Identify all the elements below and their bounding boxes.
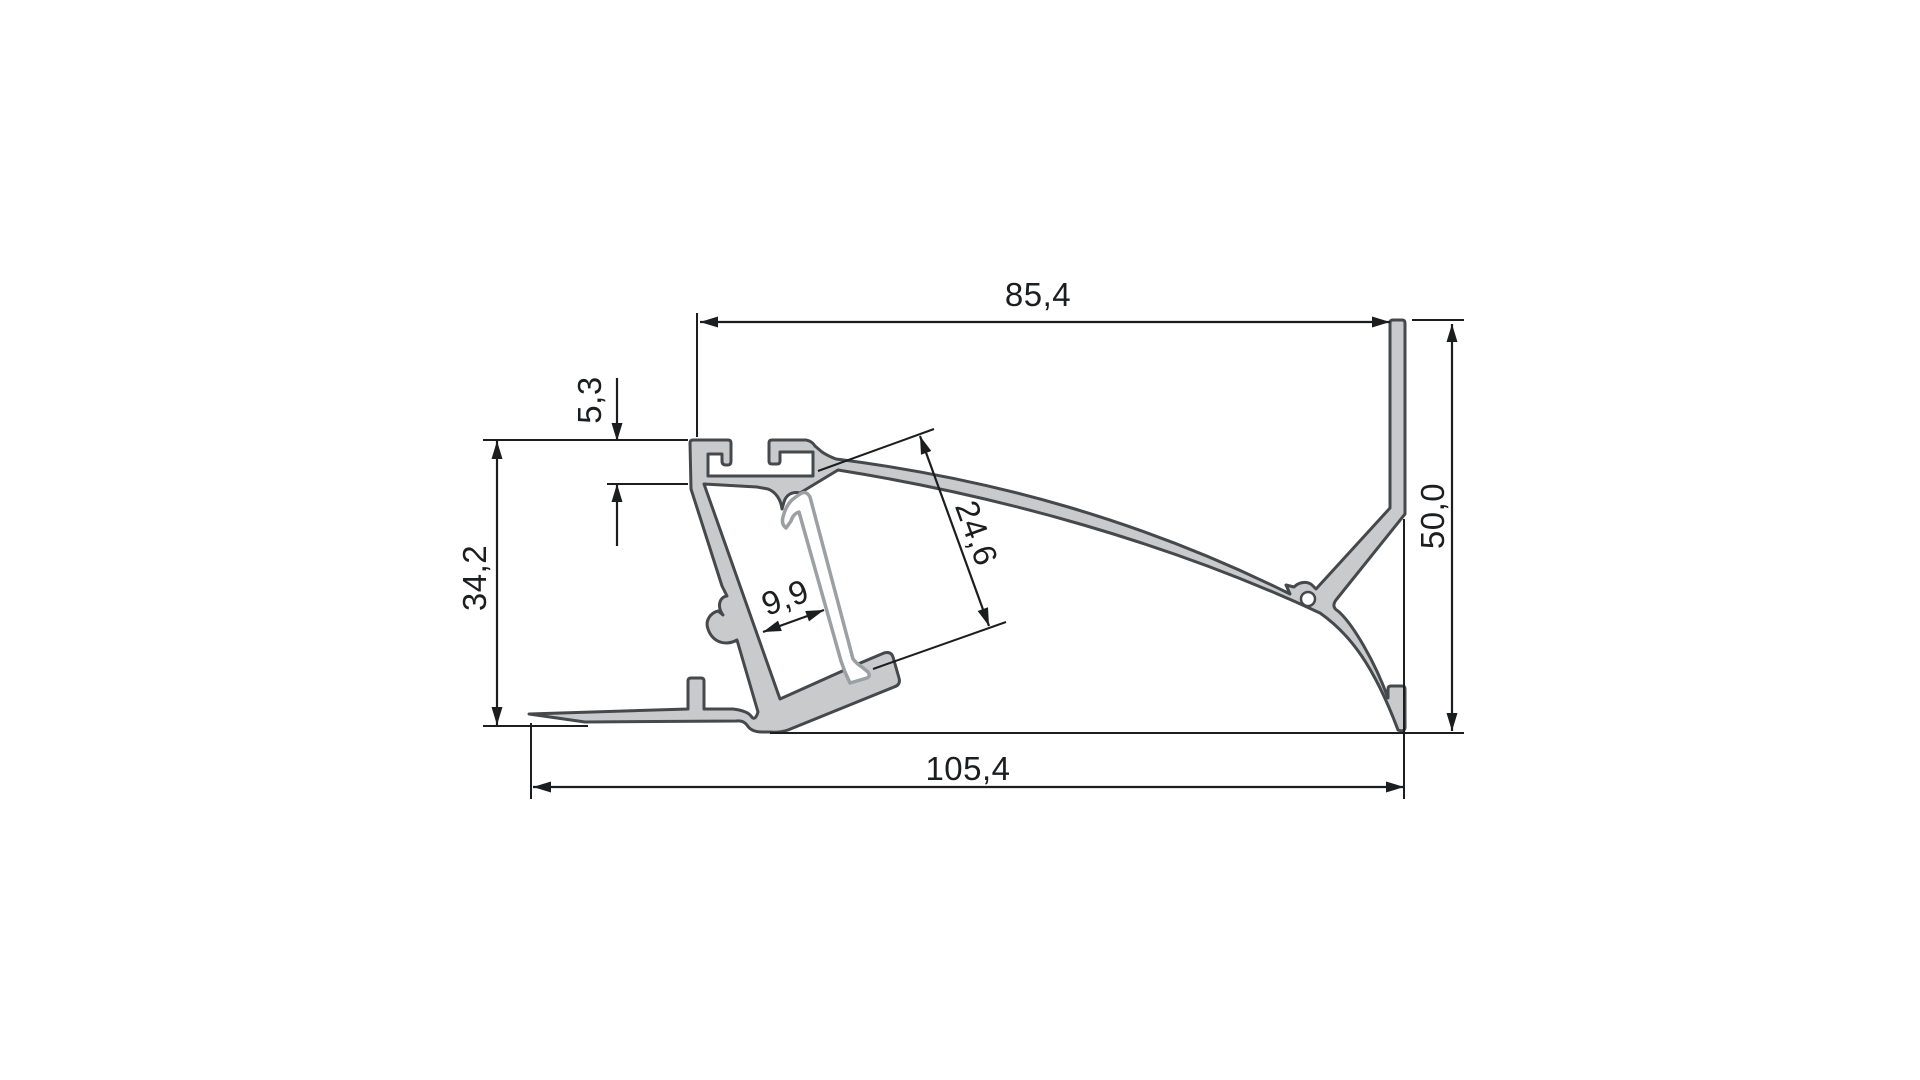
- label-channel-depth: 24,6: [948, 496, 1005, 571]
- label-top-width: 85,4: [1005, 276, 1071, 313]
- arrowhead: [1386, 782, 1404, 793]
- arrowhead: [492, 707, 503, 725]
- arrowhead: [533, 782, 551, 793]
- label-channel-inner-width: 9,9: [756, 572, 813, 623]
- arrowhead: [1447, 713, 1458, 731]
- arrowhead: [612, 423, 623, 441]
- arrowhead: [978, 607, 994, 628]
- arrowhead: [700, 317, 718, 328]
- technical-drawing-canvas: 85,4 5,3 34,2 24,6 9,9 50,0 105,4: [0, 0, 1920, 1080]
- arrowhead: [915, 434, 931, 455]
- extension-channel-bottom: [873, 622, 1006, 669]
- arrowhead: [761, 621, 782, 637]
- label-left-height: 34,2: [456, 545, 493, 611]
- label-bottom-width: 105,4: [925, 750, 1010, 787]
- arrowhead: [612, 484, 623, 502]
- screw-port-hole: [1301, 592, 1315, 606]
- arrowhead: [492, 441, 503, 459]
- label-lip-height: 5,3: [571, 376, 608, 423]
- arrowhead: [1372, 317, 1390, 328]
- profile-cross-section: 85,4 5,3 34,2 24,6 9,9 50,0 105,4: [0, 0, 1920, 1080]
- arrowhead: [1447, 324, 1458, 342]
- label-right-height: 50,0: [1414, 483, 1451, 549]
